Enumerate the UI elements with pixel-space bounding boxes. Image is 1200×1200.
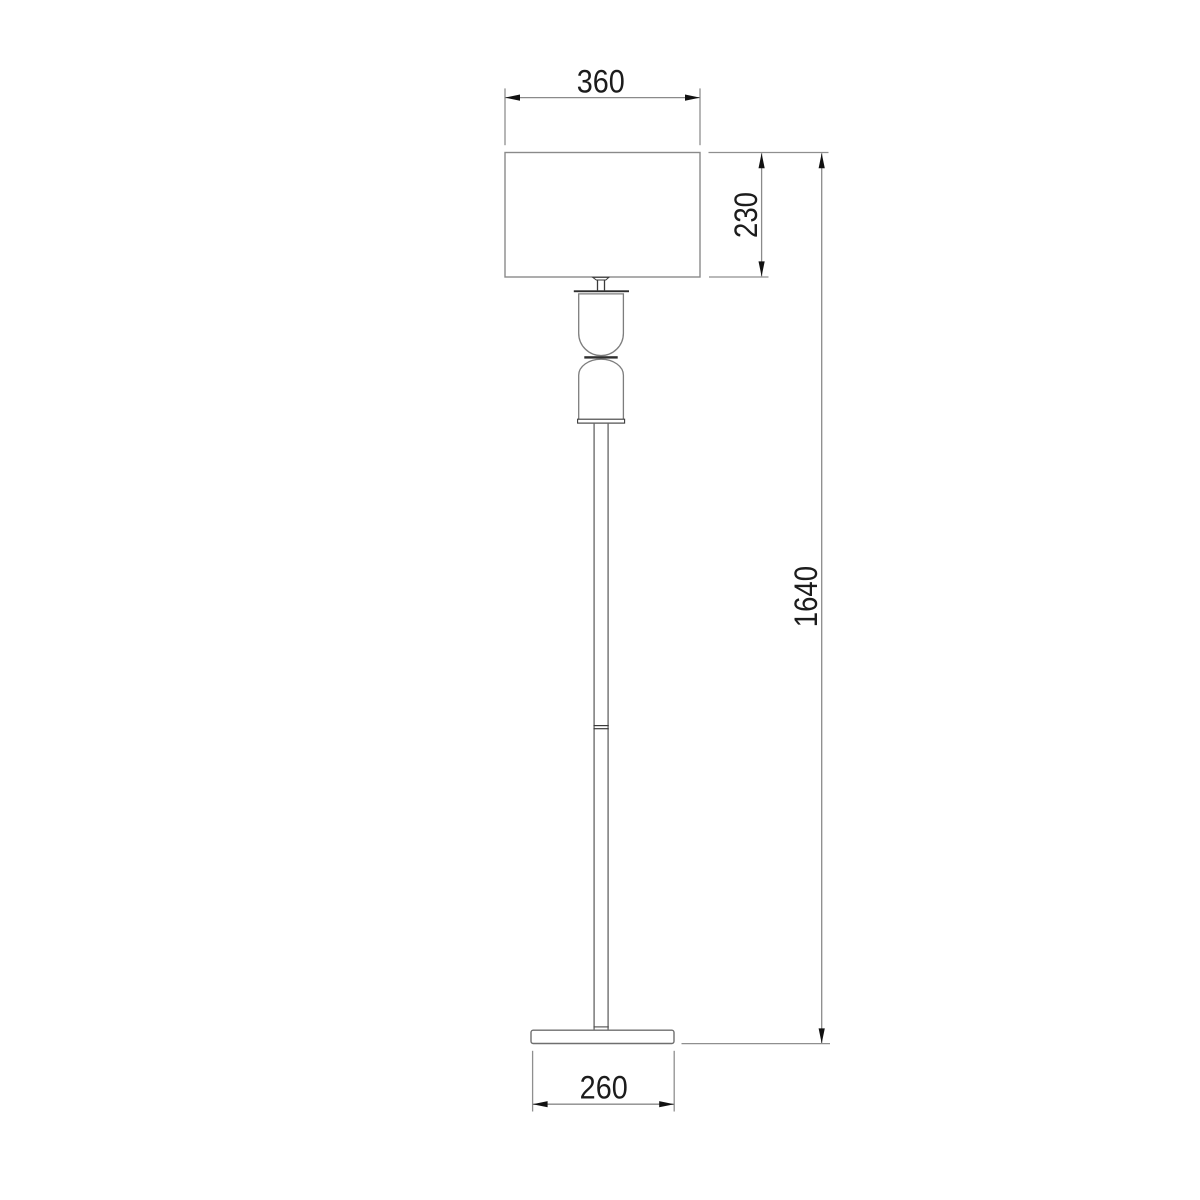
svg-text:360: 360 — [577, 64, 625, 100]
svg-text:230: 230 — [729, 192, 764, 238]
svg-text:1640: 1640 — [789, 566, 824, 627]
svg-text:260: 260 — [580, 1070, 628, 1106]
